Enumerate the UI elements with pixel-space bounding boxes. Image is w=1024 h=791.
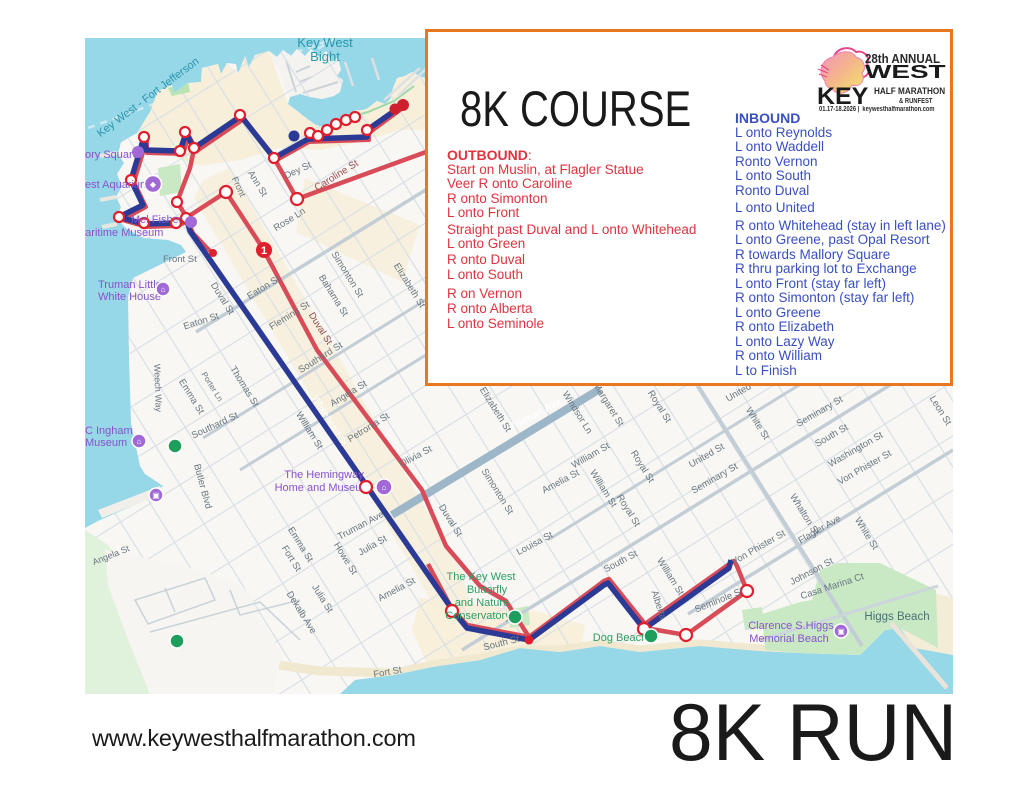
svg-text:Museum: Museum	[85, 437, 127, 449]
svg-text:1: 1	[261, 245, 267, 257]
svg-text:Memorial Beach: Memorial Beach	[749, 633, 828, 645]
svg-text:Weech Way: Weech Way	[152, 364, 164, 413]
svg-text:and Nature: and Nature	[455, 597, 509, 609]
svg-text:Bight: Bight	[310, 49, 340, 64]
svg-text:⌂: ⌂	[382, 483, 387, 492]
svg-text:Front St: Front St	[163, 254, 197, 265]
svg-text:Butterfly: Butterfly	[467, 584, 508, 596]
svg-text:▣: ▣	[837, 627, 845, 636]
svg-text:◆: ◆	[150, 180, 157, 189]
svg-text:Dog Beach: Dog Beach	[593, 632, 647, 644]
svg-text:White House: White House	[98, 291, 161, 303]
svg-text:Maritime Museum: Maritime Museum	[85, 227, 163, 239]
svg-text:C Ingham: C Ingham	[85, 425, 133, 437]
svg-text:est Aquarium: est Aquarium	[85, 179, 149, 191]
svg-text:The Key West: The Key West	[447, 571, 516, 583]
svg-text:Mel Fisher: Mel Fisher	[131, 214, 183, 226]
svg-text:▣: ▣	[152, 491, 160, 500]
svg-text:⌂: ⌂	[161, 285, 166, 294]
svg-text:Truman Little: Truman Little	[98, 279, 162, 291]
svg-text:Conservatory: Conservatory	[445, 610, 511, 622]
svg-text:ory Square: ory Square	[85, 149, 139, 161]
svg-text:Clarence S.Higgs: Clarence S.Higgs	[748, 620, 834, 632]
svg-text:Higgs Beach: Higgs Beach	[864, 611, 929, 623]
svg-text:⌂: ⌂	[137, 437, 142, 446]
svg-text:The Hemingway: The Hemingway	[284, 469, 364, 481]
svg-text:Home and Museu: Home and Museu	[275, 482, 362, 494]
